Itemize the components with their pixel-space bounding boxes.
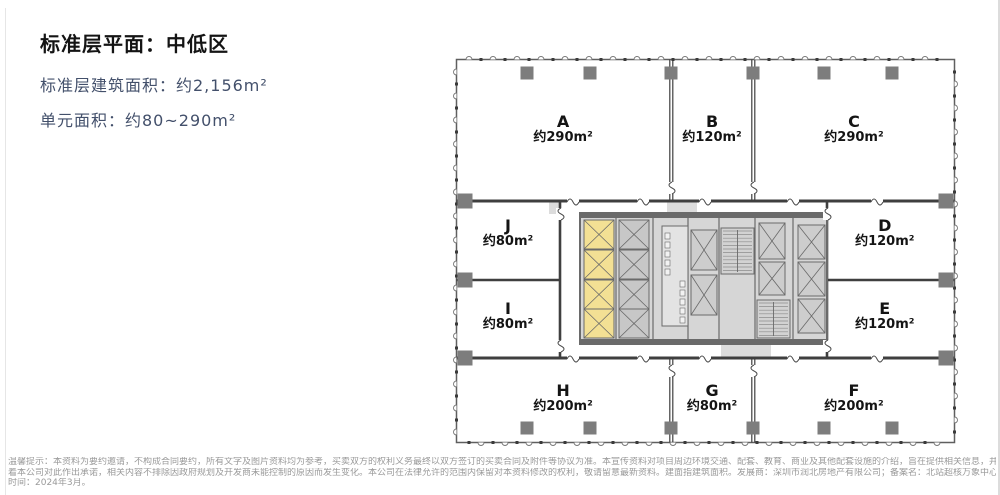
page-title: 标准层平面：中低区 — [40, 28, 229, 57]
disclaimer-line: 温馨提示：本资料为要约邀请，不构成合同要约，所有文字及图片资料均为参考，买卖双方… — [8, 457, 996, 468]
floor-area-text: 标准层建筑面积：约2,156m² — [40, 72, 268, 96]
floor-plan-drawing — [453, 55, 958, 447]
page: 标准层平面：中低区 标准层建筑面积：约2,156m² 单元面积：约80~290m… — [0, 0, 1000, 495]
floor-plan: A 约290m² B 约120m² C 约290m² J 约80m² D 约12… — [453, 55, 958, 447]
disclaimer-line: 时间：2024年3月。 — [8, 478, 996, 489]
core-area — [580, 213, 827, 344]
legal-disclaimer: 温馨提示：本资料为要约邀请，不构成合同要约，所有文字及图片资料均为参考，买卖双方… — [8, 457, 996, 489]
disclaimer-line: 着本公司对此作出承诺，相关内容不排除因政府规划及开发商未能控制的原因而发生变化。… — [8, 468, 996, 479]
unit-area-range-text: 单元面积：约80~290m² — [40, 107, 236, 131]
